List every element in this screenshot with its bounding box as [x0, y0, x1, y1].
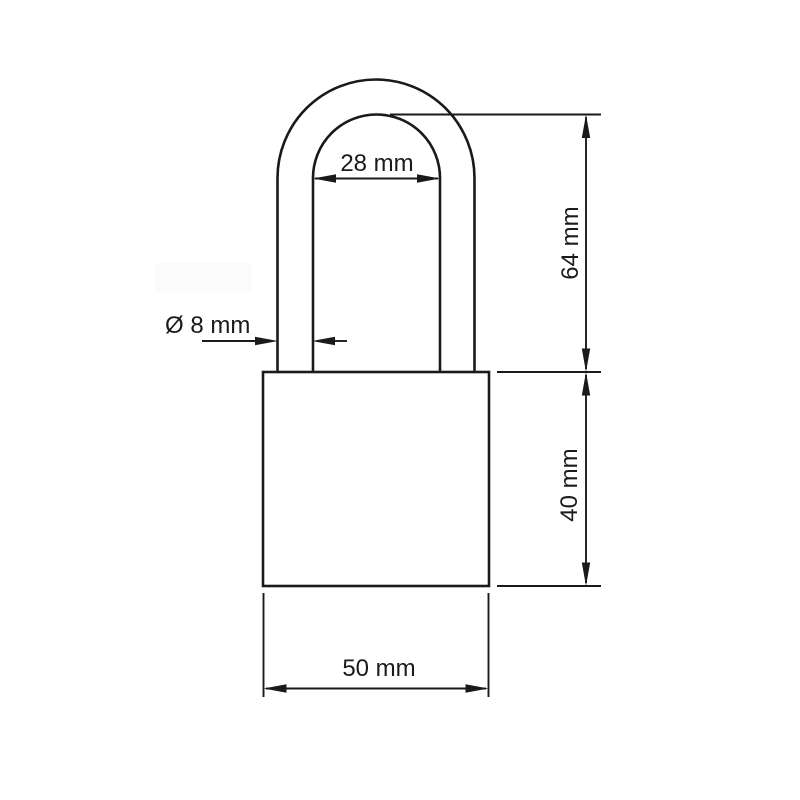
dim-label-shackle-inner-width: 28 mm: [340, 150, 413, 177]
dim-28mm-arrow-left: [313, 174, 336, 182]
dimension-shackle-height: 64 mm: [390, 115, 601, 373]
shackle-outer-contour: [278, 80, 475, 377]
dim-label-body-height: 40 mm: [556, 448, 583, 521]
padlock-body: [263, 372, 489, 586]
dim-28mm-arrow-right: [417, 174, 440, 182]
dim-40mm-arrow-up: [582, 372, 590, 396]
dim-label-shackle-diameter: Ø 8 mm: [165, 312, 250, 339]
dimension-shackle-diameter: Ø 8 mm: [165, 312, 347, 345]
dim-8mm-arrow-right-pointing: [255, 337, 278, 345]
dim-50mm-arrow-left: [264, 684, 287, 692]
dimension-shackle-inner-width: 28 mm: [313, 150, 440, 183]
dim-8mm-arrow-left-pointing: [312, 337, 335, 345]
drawing-canvas: 28 mm Ø 8 mm 64 mm 40 mm: [0, 0, 800, 800]
dim-label-body-width: 50 mm: [342, 655, 415, 682]
dim-50mm-arrow-right: [466, 684, 489, 692]
dimension-body-width: 50 mm: [264, 593, 489, 697]
dim-40mm-arrow-down: [582, 563, 590, 587]
dim-64mm-arrow-down: [582, 349, 590, 373]
faint-background-smudge: [155, 262, 252, 292]
padlock-technical-drawing: 28 mm Ø 8 mm 64 mm 40 mm: [0, 0, 800, 800]
dimension-body-height: 40 mm: [497, 372, 601, 586]
dim-64mm-arrow-up: [582, 115, 590, 139]
dim-label-shackle-height: 64 mm: [557, 206, 584, 279]
